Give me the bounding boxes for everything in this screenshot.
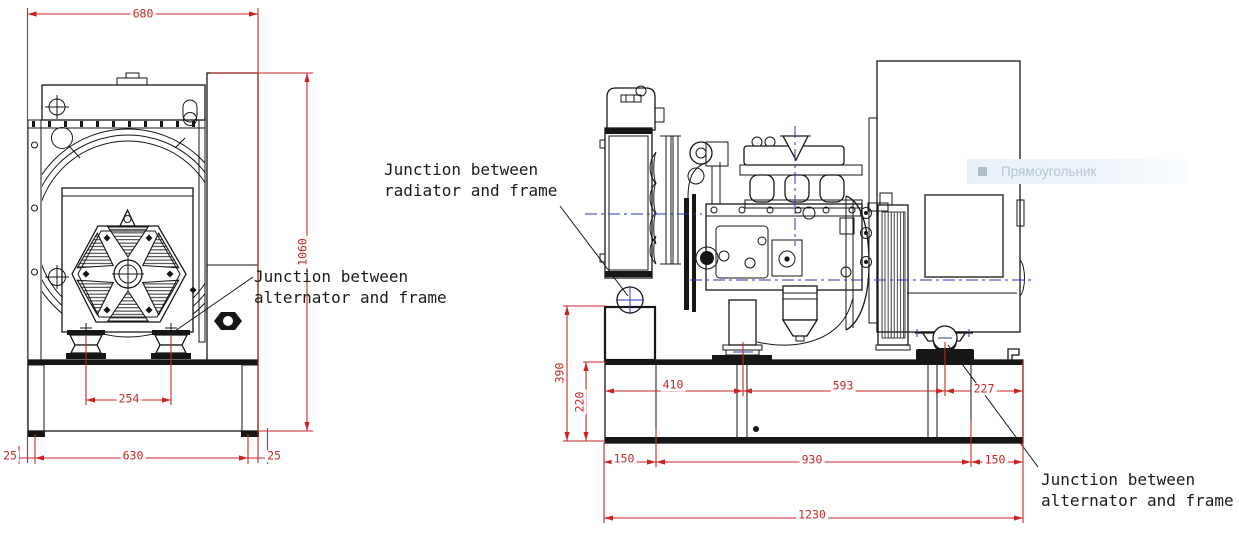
side-base-frame [605,349,1023,443]
shape-tool-tooltip-label: Прямоугольник [1001,164,1096,179]
dim-593: 593 [831,380,856,392]
dim-riser-height: 390 [554,361,566,386]
dim-end-right: 150 [983,454,1008,466]
dim-frame-length: 630 [121,450,146,462]
dim-mount-spacing: 254 [117,393,142,405]
annotation-alternator-frame-side: Junction between alternator and frame [1041,469,1234,511]
side-heat-exchanger [861,193,911,350]
engineering-drawing: 680 1060 254 25 630 25 390 220 410 593 2… [0,0,1239,533]
annotation-line: Junction between [1041,469,1234,490]
annotation-line: Junction between [384,159,557,180]
annotation-alternator-frame-front: Junction between alternator and frame [254,266,447,308]
annotation-line: alternator and frame [254,287,447,308]
dim-227: 227 [972,383,997,395]
annotation-line: Junction between [254,266,447,287]
dim-overhang-right: 25 [265,450,283,462]
side-fan [650,136,681,264]
dim-overall-length: 1230 [796,509,828,521]
dim-overhang-left: 25 [1,450,19,462]
dim-end-left: 150 [612,453,637,465]
dim-overall-width: 680 [131,8,156,20]
annotation-line: alternator and frame [1041,490,1234,511]
dim-mount-span: 930 [800,454,825,466]
rectangle-shape-icon [978,167,987,176]
dim-overall-height: 1060 [297,236,309,268]
annotation-line: radiator and frame [384,180,557,201]
side-engine [684,136,869,362]
front-control-box [207,73,258,361]
dim-frame-height: 220 [574,390,586,415]
shape-tool-tooltip: Прямоугольник [967,159,1187,184]
annotation-radiator-frame: Junction between radiator and frame [384,159,557,201]
dim-410: 410 [661,379,686,391]
front-view [24,73,259,437]
front-base-frame [27,360,259,437]
